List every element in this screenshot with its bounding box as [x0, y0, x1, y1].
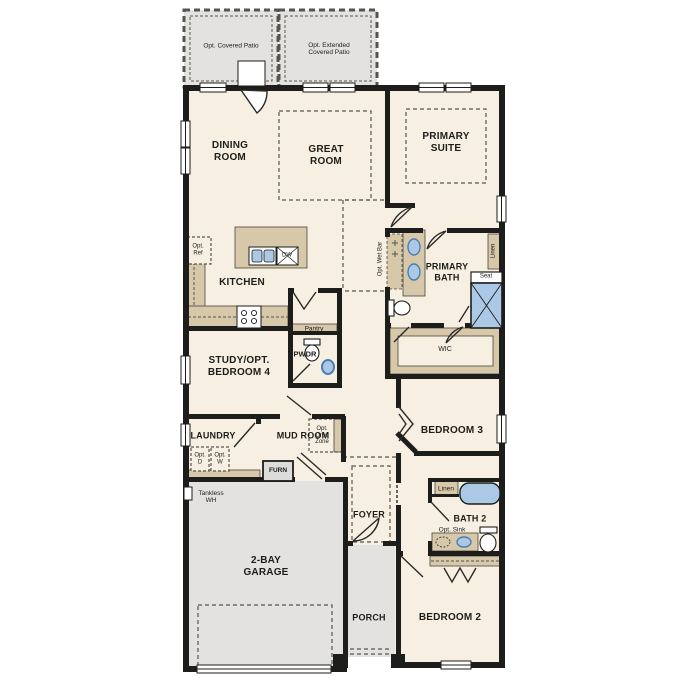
wall-study-bottom-a [183, 414, 280, 419]
wall-bath-top-a [385, 228, 423, 233]
wall-pantry-right [337, 288, 342, 387]
wall-study-bottom-b [312, 414, 345, 419]
wall-bedroom3-bottom [414, 451, 505, 456]
bath2-sink [457, 537, 471, 547]
floor-plan-drawing [0, 0, 687, 687]
bath2-tub [460, 483, 500, 504]
porch-post-right [391, 654, 405, 668]
toilet-pwdr [304, 339, 320, 361]
garage-floor [187, 481, 343, 669]
wall-bedroom2-top-a [397, 551, 403, 556]
wall-bedroom2-top-b [428, 551, 505, 556]
wall-bath2-top [430, 478, 505, 482]
wall-bedroom3-left-a [396, 378, 401, 408]
wall-greatroom-suite [385, 85, 390, 205]
island-sink-basin-left [252, 250, 262, 262]
island-sink-basin-right [264, 250, 274, 262]
wall-bath-bottom-a [385, 323, 391, 328]
wall-linen2-bottom [432, 494, 459, 497]
wall-foyer-bottom-b [383, 541, 397, 546]
wic-floor [398, 336, 493, 366]
toilet-water-closet [388, 300, 410, 316]
floor-plan: Opt. Covered Patio Opt. Extended Covered… [0, 0, 687, 687]
toilet-bath2 [480, 527, 497, 552]
patio-extended-floor [279, 10, 377, 87]
wall-pantry-pwdr [288, 331, 342, 335]
wall-garage-right [343, 478, 348, 668]
wall-pantry-top-b [318, 288, 342, 293]
opt-ref-outline [187, 237, 211, 264]
primary-sink-2 [408, 264, 420, 280]
patio-door-slab [238, 61, 265, 86]
opt-dryer-outline [191, 447, 209, 471]
wall-bath2hall-left-b [396, 505, 401, 555]
wall-bedroom2-left [396, 555, 401, 665]
wall-hall-wic [385, 327, 390, 378]
wall-bath2hall-left-a [396, 453, 401, 483]
wall-laundry-stub [256, 414, 261, 424]
pwdr-sink [322, 360, 334, 374]
shower-seat [471, 272, 502, 283]
furnace [263, 461, 293, 481]
primary-sink-1 [408, 239, 420, 255]
opt-washer-outline [211, 447, 229, 471]
wall-mudroom-right [341, 416, 346, 462]
porch-floor [345, 545, 395, 657]
porch-post-left [333, 654, 347, 668]
wall-pantry-left [288, 288, 293, 387]
range [237, 306, 261, 328]
drop-zone-bench [334, 419, 342, 452]
wall-bath-bottom-b [411, 323, 444, 328]
wall-pwdr-bottom [288, 383, 342, 388]
linen-closet-bath2 [435, 481, 458, 496]
wall-foyer-bottom-a [343, 541, 353, 546]
wall-wic-bottom [385, 374, 505, 379]
wall-bath-top-b [447, 228, 505, 233]
wall-bath2-left-a [428, 478, 432, 503]
tankless-water-heater [184, 487, 192, 500]
